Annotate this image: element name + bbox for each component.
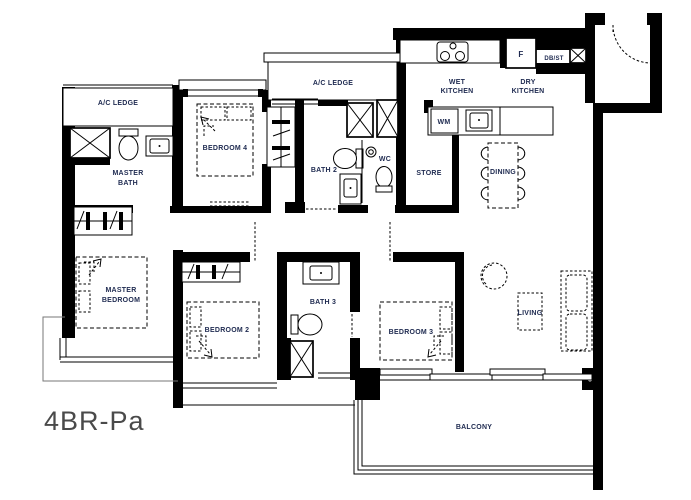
label-ac-ledge-mid: A/C LEDGE xyxy=(313,80,353,87)
label-fridge: F xyxy=(518,50,523,59)
label-db-st: DB/ST xyxy=(544,56,563,62)
label-dry-kitchen-2: KITCHEN xyxy=(512,88,545,95)
ac-ledge-mid-box xyxy=(264,53,401,100)
bath3-sink-icon xyxy=(303,262,339,284)
kitchen-sink-icon xyxy=(466,110,492,131)
balcony-railing xyxy=(354,400,593,474)
sliding-door-panels xyxy=(378,369,592,380)
bedroom2-wardrobe-icon xyxy=(182,262,240,282)
sofa-icon xyxy=(561,271,592,351)
planter-ledge xyxy=(179,80,266,90)
floorplan-canvas: A/C LEDGE MASTER BATH BEDROOM 4 A/C LEDG… xyxy=(0,0,691,500)
label-store: STORE xyxy=(416,170,441,177)
bath3-shower-icon xyxy=(290,341,313,377)
master-wardrobe-icon xyxy=(74,207,132,235)
bath2-shower-icon xyxy=(347,100,398,137)
armchair-icon xyxy=(481,263,507,289)
unit-type-title: 4BR-Pa xyxy=(44,406,145,436)
bedroom4-vent xyxy=(210,202,250,206)
floorplan-drawing: A/C LEDGE MASTER BATH BEDROOM 4 A/C LEDG… xyxy=(0,0,691,500)
bath2-sink-icon xyxy=(340,174,361,204)
label-bath2: BATH 2 xyxy=(311,167,337,174)
shaft-icon xyxy=(570,48,586,63)
master-toilet-icon xyxy=(119,129,138,160)
label-wet-kitchen-2: KITCHEN xyxy=(441,88,474,95)
label-dining: DINING xyxy=(490,169,516,176)
wc-fixtures xyxy=(362,140,392,203)
label-master-bath-1: MASTER xyxy=(112,170,143,177)
label-bedroom3: BEDROOM 3 xyxy=(389,329,434,336)
label-ac-ledge-left: A/C LEDGE xyxy=(98,100,138,107)
label-living: LIVING xyxy=(518,310,543,317)
hob-icon xyxy=(437,42,468,62)
label-washing-machine: WM xyxy=(438,119,451,126)
label-wet-kitchen-1: WET xyxy=(449,79,466,86)
master-shower-icon xyxy=(70,128,110,158)
label-wc: WC xyxy=(379,156,391,163)
label-dry-kitchen-1: DRY xyxy=(520,79,535,86)
label-balcony: BALCONY xyxy=(456,424,492,431)
label-master-bedroom-1: MASTER xyxy=(105,287,136,294)
label-master-bedroom-2: BEDROOM xyxy=(102,297,140,304)
entry-door-swing xyxy=(613,25,651,63)
label-bedroom2: BEDROOM 2 xyxy=(205,327,250,334)
master-sink-icon xyxy=(146,136,173,156)
label-bath3: BATH 3 xyxy=(310,299,336,306)
label-master-bath-2: BATH xyxy=(118,180,138,187)
bath3-toilet-icon xyxy=(291,314,322,335)
bedroom4-bed-icon xyxy=(197,104,253,176)
bath2-toilet-icon xyxy=(334,149,364,169)
bedroom4-wardrobe-icon xyxy=(267,107,295,167)
label-bedroom4: BEDROOM 4 xyxy=(203,145,248,152)
